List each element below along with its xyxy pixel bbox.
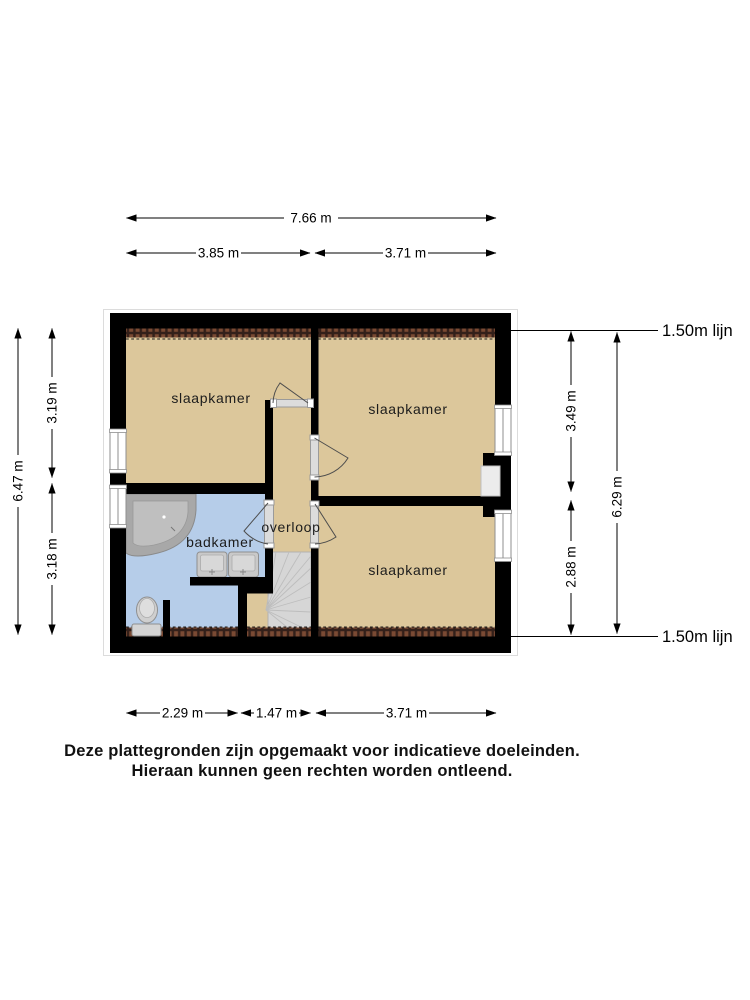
dimension-right-top-section: 3.49 m [564, 332, 579, 492]
dimension-left-top-section: 3.19 m [45, 329, 60, 478]
dimension-top-total: 7.66 m [127, 211, 497, 226]
room-label-bedroom-top-right: slaapkamer [368, 401, 447, 417]
dimension-top-left-section: 3.85 m [127, 246, 311, 261]
window-icon [495, 405, 512, 456]
floor-plan-page: slaapkamer slaapkamer slaapkamer badkame… [0, 0, 750, 1000]
dimension-right-total: 6.29 m [610, 333, 625, 634]
dimension-label: 3.18 m [45, 538, 60, 579]
dimension-label: 6.29 m [610, 476, 625, 517]
wall-left [110, 313, 126, 653]
room-label-landing: overloop [261, 519, 320, 535]
wall-bathroom-top [126, 483, 273, 494]
dimension-bottom-right-section: 3.71 m [316, 706, 496, 721]
wall-landing-right-lower [311, 545, 319, 637]
dimension-label: 7.66 m [290, 211, 331, 226]
wall-toilet-partition [163, 600, 170, 637]
dimension-label: 3.19 m [45, 382, 60, 423]
wall-bottom [110, 637, 511, 654]
dimension-right-bottom-section: 2.88 m [564, 501, 579, 635]
disclaimer-line-2: Hieraan kunnen geen rechten worden ontle… [131, 762, 512, 780]
wall-bathroom-right [238, 577, 247, 637]
dimension-left-total: 6.47 m [11, 329, 26, 635]
room-label-bedroom-bottom-right: slaapkamer [368, 562, 447, 578]
window-icon [110, 485, 127, 528]
dimension-left-bottom-section: 3.18 m [45, 484, 60, 635]
dimension-bottom-left-section: 2.29 m [127, 706, 238, 721]
dimension-label: 2.88 m [564, 546, 579, 587]
dimension-bottom-middle-section: 1.47 m [241, 706, 311, 721]
dimension-label: 3.71 m [386, 706, 427, 721]
chimney-icon [481, 466, 500, 496]
height-line-top-label: 1.50m lijn [662, 322, 733, 340]
room-label-bathroom: badkamer [186, 534, 254, 550]
window-icon [495, 510, 512, 562]
disclaimer-line-1: Deze plattegronden zijn opgemaakt voor i… [64, 742, 580, 760]
floor-plan-drawing: slaapkamer slaapkamer slaapkamer badkame… [0, 0, 750, 1000]
dimension-label: 3.85 m [198, 246, 239, 261]
wall-landing-right-upper [311, 328, 319, 437]
window-icon [110, 429, 127, 473]
wall-sink [190, 577, 265, 586]
wall-top [110, 313, 511, 329]
room-label-bedroom-top-left: slaapkamer [171, 390, 250, 406]
height-line-bottom-label: 1.50m lijn [662, 628, 733, 646]
dimension-label: 3.49 m [564, 390, 579, 431]
dimension-label: 3.71 m [385, 246, 426, 261]
dimension-label: 2.29 m [162, 706, 203, 721]
dimension-label: 6.47 m [11, 460, 26, 501]
wall-bedrooms-divider [311, 496, 495, 506]
wall-nook-top [247, 586, 273, 594]
dimension-label: 1.47 m [256, 706, 297, 721]
dimension-top-right-section: 3.71 m [315, 246, 496, 261]
